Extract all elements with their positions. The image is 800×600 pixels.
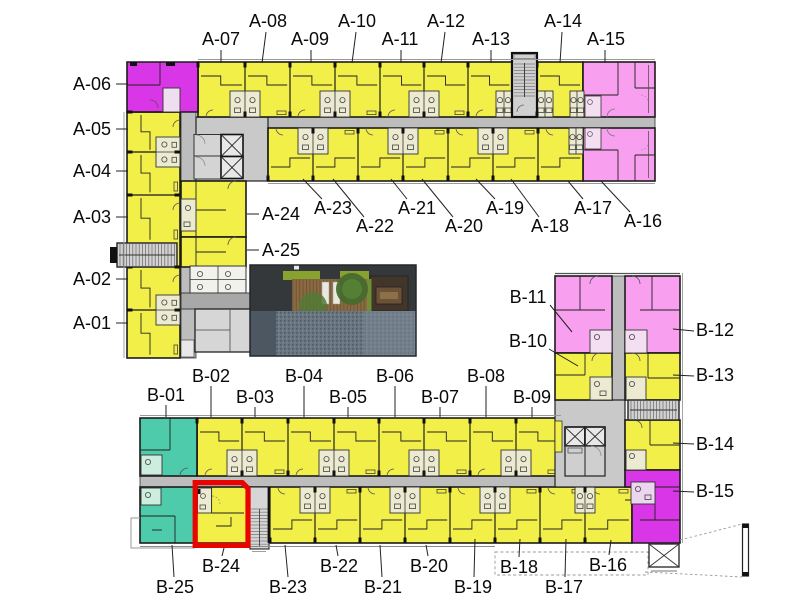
svg-text:B-19: B-19 [454, 577, 492, 597]
svg-text:B-07: B-07 [421, 387, 459, 407]
svg-text:A-12: A-12 [427, 11, 465, 31]
svg-text:A-19: A-19 [486, 198, 524, 218]
svg-text:B-17: B-17 [545, 577, 583, 597]
svg-text:B-20: B-20 [410, 556, 448, 576]
svg-text:B-09: B-09 [513, 387, 551, 407]
svg-text:B-01: B-01 [147, 385, 185, 405]
svg-text:A-13: A-13 [472, 29, 510, 49]
svg-text:B-04: B-04 [285, 366, 323, 386]
svg-text:A-06: A-06 [73, 74, 111, 94]
svg-text:A-17: A-17 [574, 198, 612, 218]
svg-text:B-23: B-23 [269, 577, 307, 597]
svg-text:A-04: A-04 [73, 161, 111, 181]
svg-text:B-21: B-21 [364, 577, 402, 597]
svg-text:B-03: B-03 [236, 387, 274, 407]
svg-text:B-22: B-22 [320, 556, 358, 576]
svg-text:B-24: B-24 [202, 556, 240, 576]
svg-text:B-14: B-14 [696, 434, 734, 454]
svg-text:A-24: A-24 [262, 204, 300, 224]
svg-text:B-13: B-13 [696, 365, 734, 385]
svg-text:A-10: A-10 [338, 11, 376, 31]
svg-text:A-20: A-20 [445, 216, 483, 236]
svg-text:B-15: B-15 [696, 481, 734, 501]
svg-text:A-22: A-22 [356, 216, 394, 236]
svg-text:B-18: B-18 [500, 557, 538, 577]
svg-text:A-05: A-05 [73, 119, 111, 139]
svg-text:B-25: B-25 [156, 577, 194, 597]
svg-text:A-01: A-01 [73, 313, 111, 333]
svg-text:B-05: B-05 [329, 387, 367, 407]
svg-text:A-08: A-08 [249, 11, 287, 31]
svg-text:B-08: B-08 [467, 366, 505, 386]
svg-text:A-16: A-16 [624, 211, 662, 231]
svg-text:A-07: A-07 [202, 29, 240, 49]
svg-text:B-12: B-12 [696, 320, 734, 340]
svg-text:A-09: A-09 [291, 29, 329, 49]
svg-text:B-11: B-11 [510, 287, 547, 307]
svg-text:B-02: B-02 [192, 366, 230, 386]
svg-text:A-23: A-23 [314, 198, 352, 218]
svg-text:A-18: A-18 [531, 216, 569, 236]
svg-text:A-15: A-15 [587, 29, 625, 49]
svg-text:B-10: B-10 [509, 331, 547, 351]
svg-text:A-14: A-14 [544, 11, 582, 31]
svg-text:A-03: A-03 [73, 207, 111, 227]
svg-text:B-06: B-06 [376, 366, 414, 386]
svg-text:A-21: A-21 [398, 198, 436, 218]
svg-text:A-11: A-11 [382, 29, 419, 49]
svg-text:B-16: B-16 [589, 555, 627, 575]
svg-text:A-25: A-25 [262, 240, 300, 260]
svg-text:A-02: A-02 [73, 269, 111, 289]
